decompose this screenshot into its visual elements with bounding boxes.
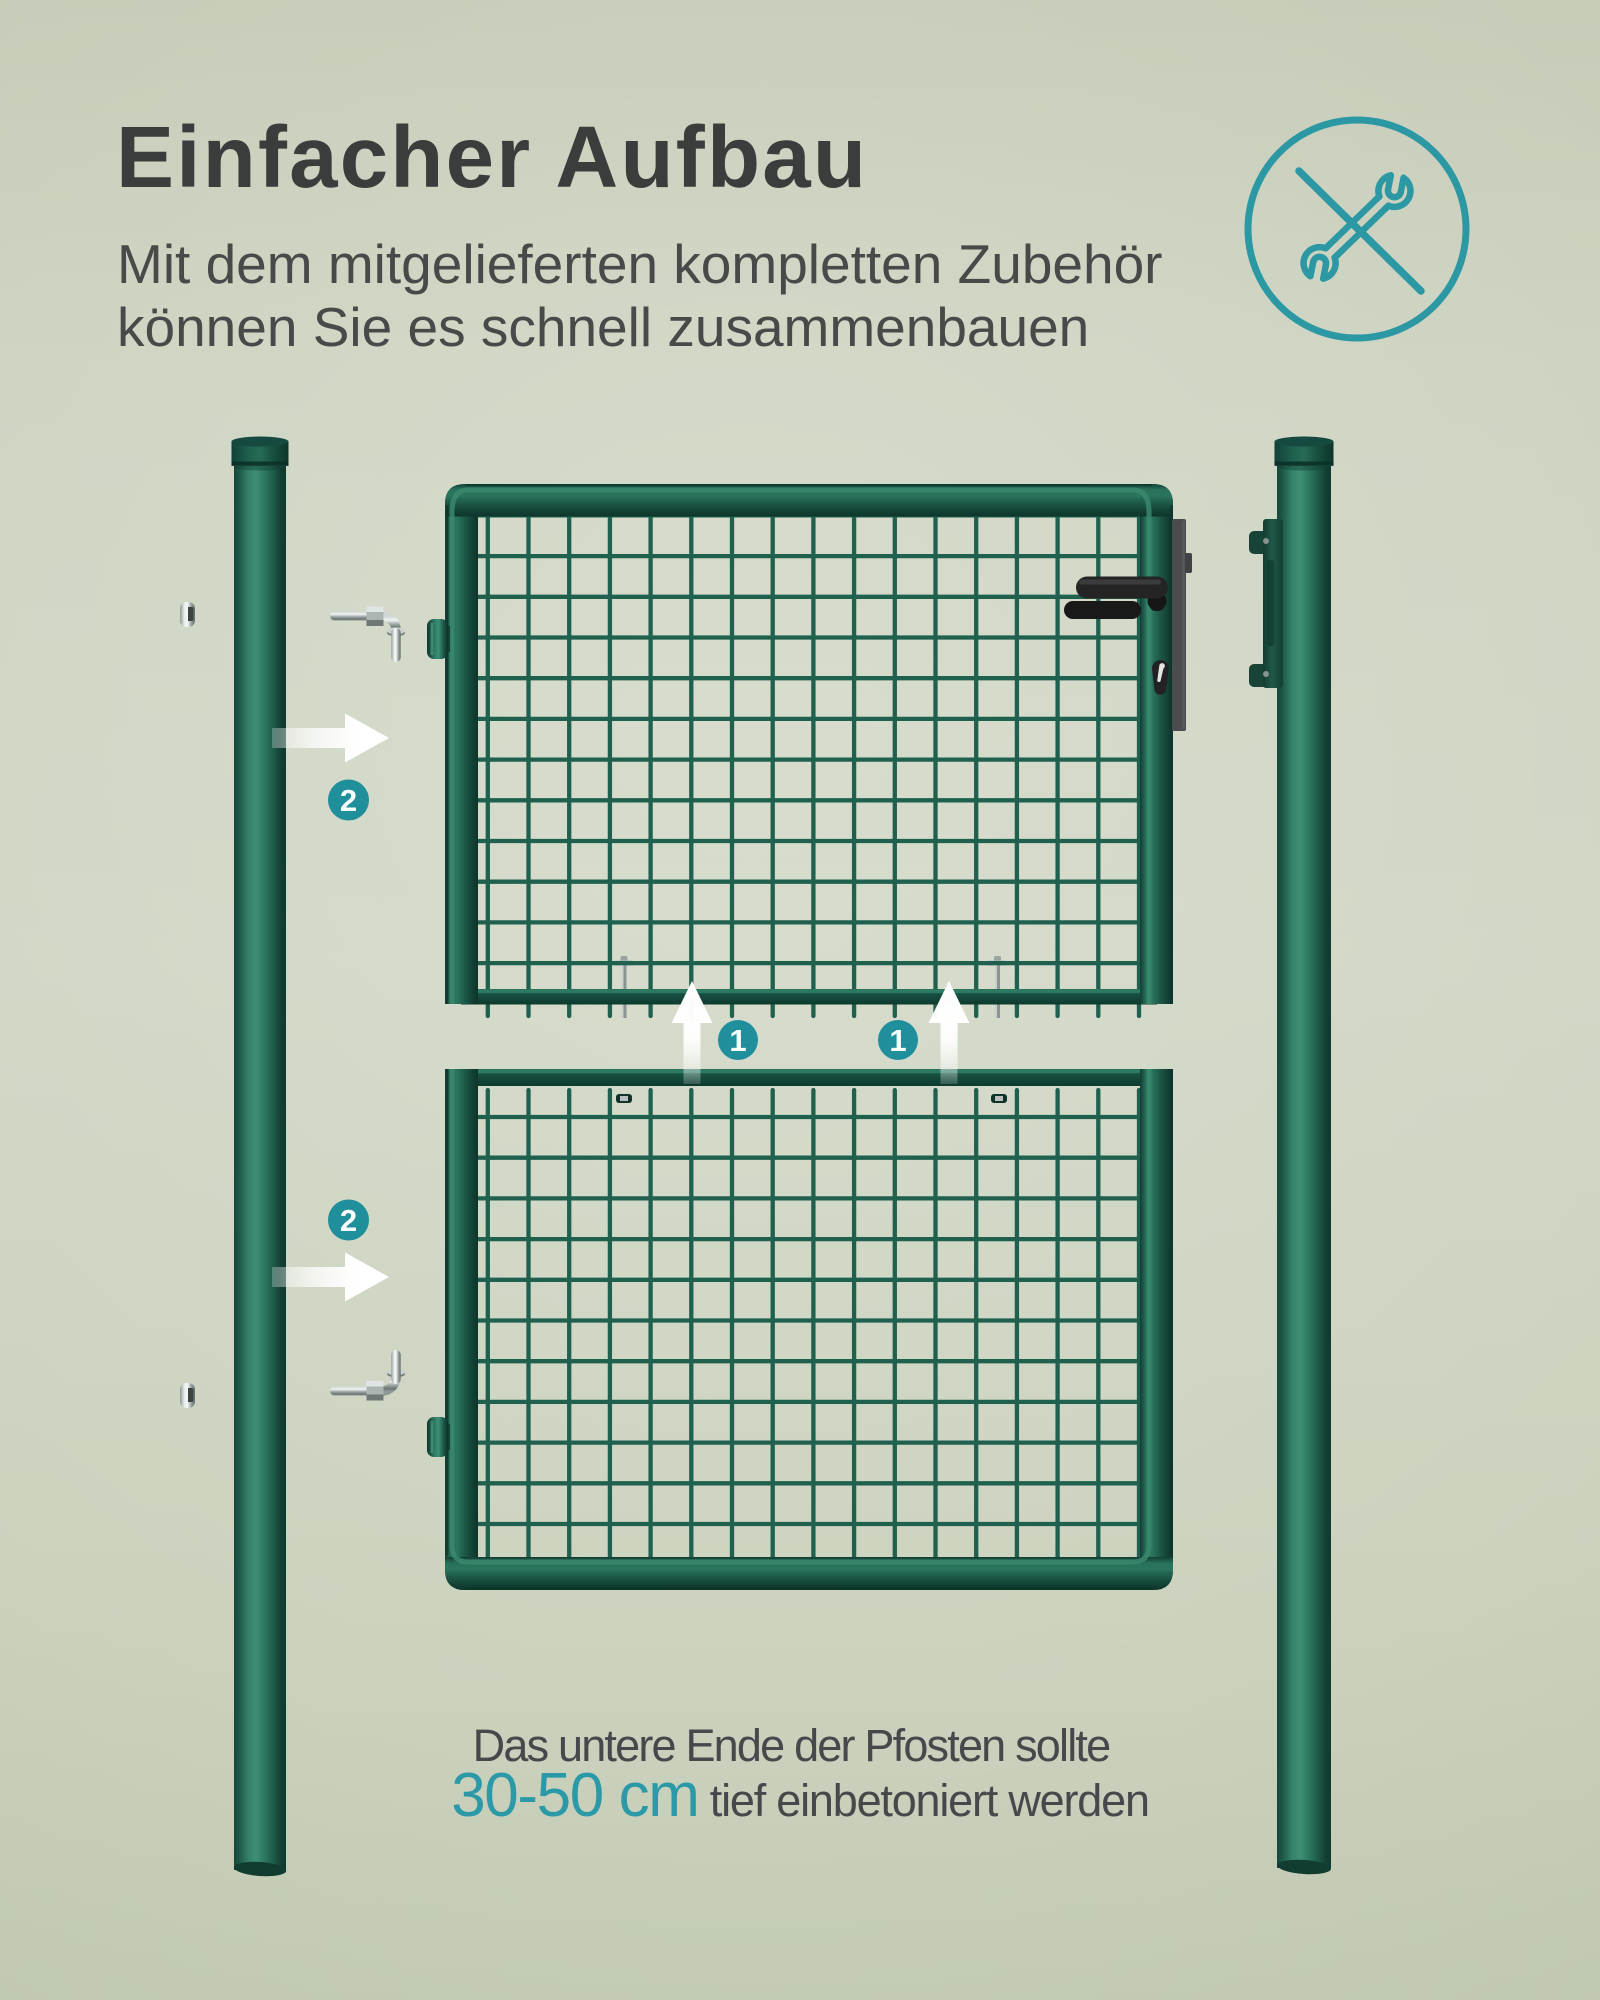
svg-text:2: 2 xyxy=(340,783,357,818)
svg-text:2: 2 xyxy=(340,1203,357,1238)
svg-text:1: 1 xyxy=(889,1023,906,1058)
svg-text:1: 1 xyxy=(729,1023,746,1058)
